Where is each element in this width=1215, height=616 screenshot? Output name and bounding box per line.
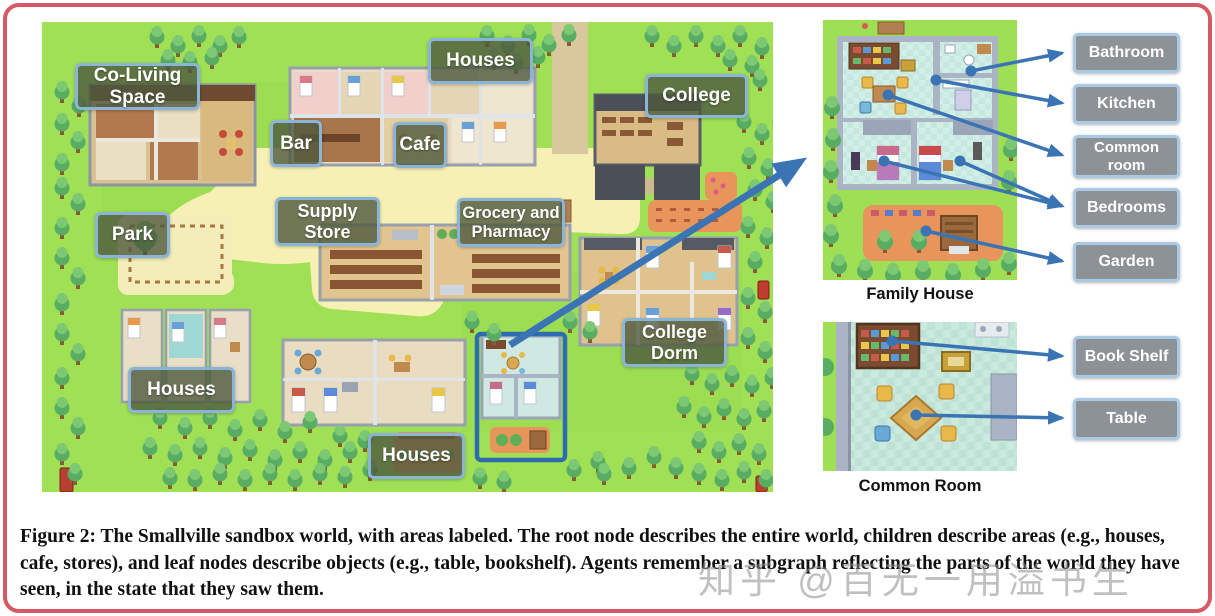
common-room-caption: Common Room xyxy=(823,477,1017,496)
map-label-co-living-space: Co-Living Space xyxy=(75,63,200,110)
label-book-shelf: Book Shelf xyxy=(1073,336,1180,378)
map-label-college-dorm: College Dorm xyxy=(622,318,727,367)
label-garden: Garden xyxy=(1073,242,1180,282)
common-room-image xyxy=(823,322,1017,471)
red-car xyxy=(758,281,769,299)
map-label-houses-bottom-middle: Houses xyxy=(368,433,465,479)
map-label-grocery-pharmacy: Grocery and Pharmacy xyxy=(457,198,565,247)
label-common-room: Common room xyxy=(1073,135,1180,178)
watermark: 知乎 @百无一用溢书生 xyxy=(698,550,1134,604)
map-label-houses-bottom-left: Houses xyxy=(128,367,235,413)
map-label-college: College xyxy=(645,74,748,118)
label-table: Table xyxy=(1073,398,1180,440)
family-house-caption: Family House xyxy=(823,285,1017,304)
label-kitchen: Kitchen xyxy=(1073,84,1180,124)
label-bedrooms: Bedrooms xyxy=(1073,188,1180,228)
smallville-world-map: Co-Living Space Houses College Bar Cafe … xyxy=(42,22,773,492)
map-label-bar: Bar xyxy=(270,120,322,167)
map-label-park: Park xyxy=(95,212,170,258)
label-bathroom: Bathroom xyxy=(1073,33,1180,73)
map-label-supply-store: Supply Store xyxy=(275,197,380,246)
map-label-houses-top: Houses xyxy=(428,38,533,84)
family-house-image xyxy=(823,20,1017,280)
figure-caption-prefix: Figure 2: xyxy=(20,526,96,547)
map-label-cafe: Cafe xyxy=(393,122,447,168)
